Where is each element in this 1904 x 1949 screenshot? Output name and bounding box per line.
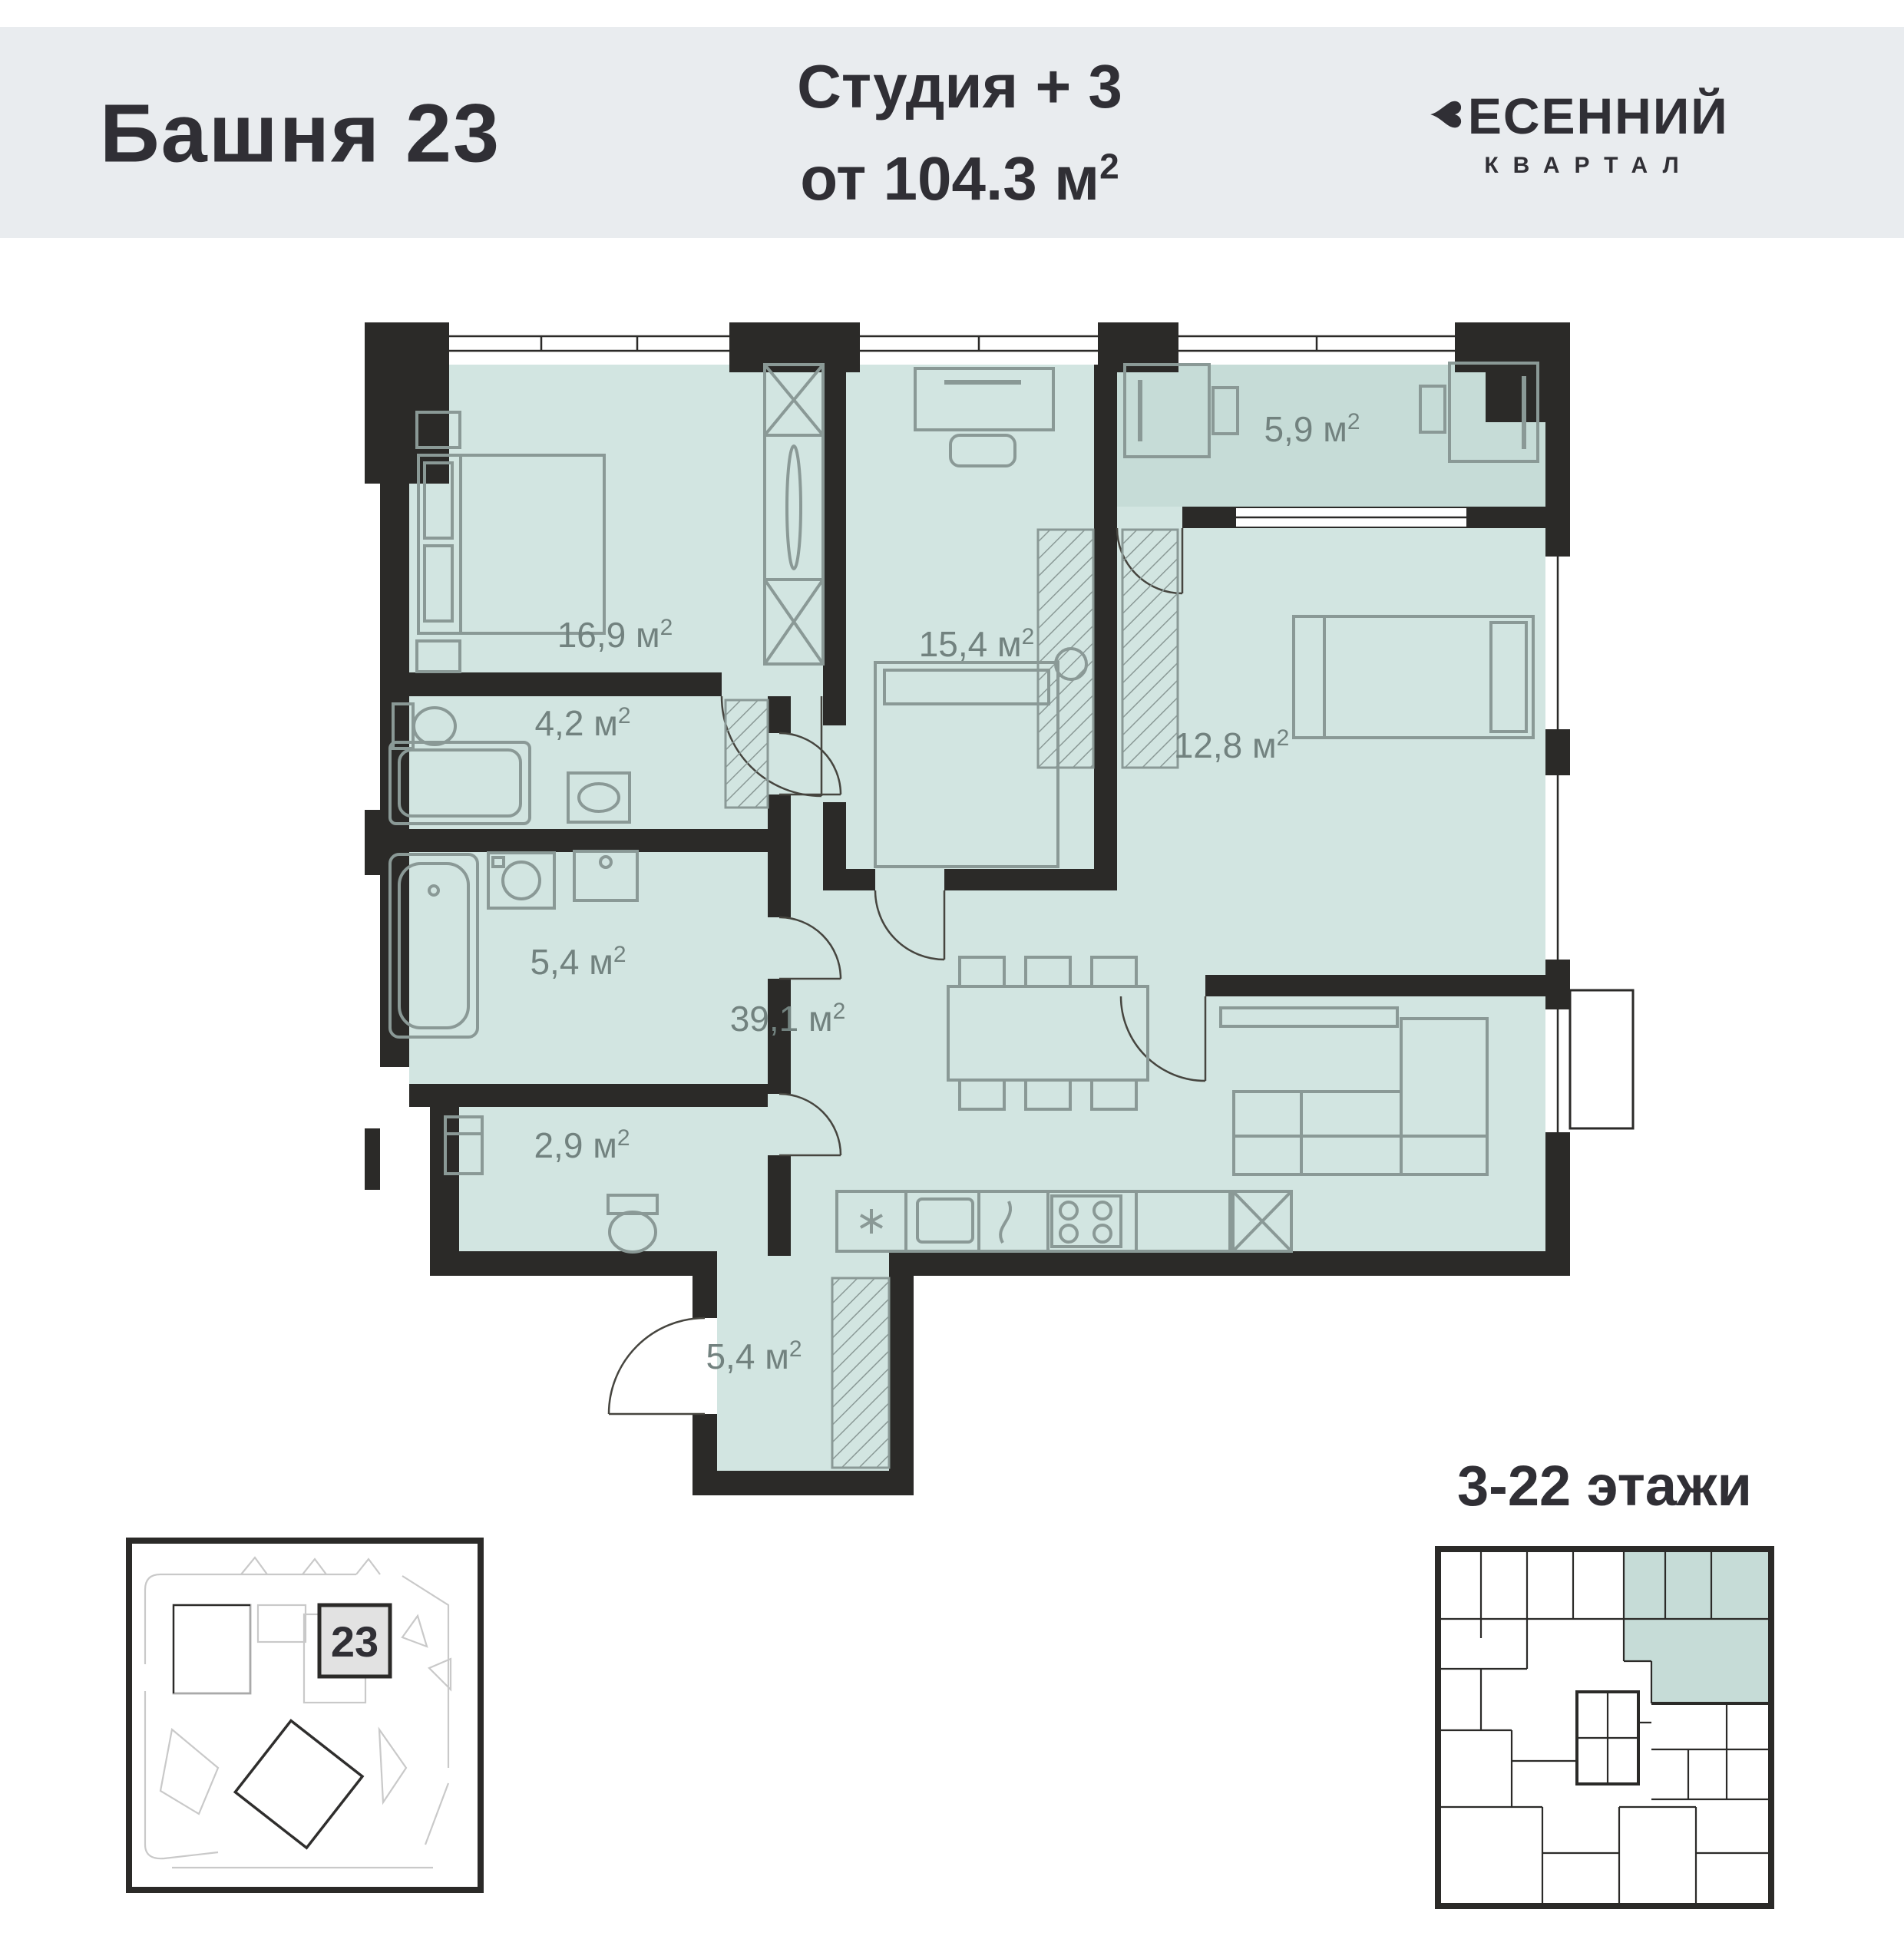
unit-area-text: от 104.3 м (800, 144, 1099, 213)
room-label-cabinet-loggia: 5,9 м2 (1264, 409, 1360, 449)
room-label-wc: 2,9 м2 (534, 1125, 630, 1165)
tower-title: Башня 23 (100, 84, 501, 180)
page-root: Башня 23 Студия + 3 от 104.3 м2 ♥ЕСЕННИЙ… (0, 0, 1904, 1949)
site-badge-label: 23 (331, 1617, 378, 1666)
room-label-bedroom-child: 12,8 м2 (1174, 725, 1290, 765)
brand-name: ♥ЕСЕННИЙ (1351, 87, 1812, 145)
header-band: Башня 23 Студия + 3 от 104.3 м2 ♥ЕСЕННИЙ… (0, 27, 1904, 238)
room-label-bathroom-small: 4,2 м2 (534, 703, 630, 743)
brand-name-rest: ЕСЕННИЙ (1468, 88, 1729, 144)
entrance-door-arc (609, 1318, 705, 1414)
room-label-bathroom-big: 5,4 м2 (530, 942, 626, 982)
wardrobe-128 (1122, 530, 1178, 768)
wardrobe-154 (1038, 530, 1093, 768)
building-floorplate (1435, 1546, 1774, 1909)
corridor-closet (726, 700, 768, 808)
unit-type-line: Студия + 3 (729, 41, 1190, 133)
unit-summary: Студия + 3 от 104.3 м2 (729, 41, 1190, 225)
apartment-floor (409, 365, 1545, 1471)
site-badge: 23 (319, 1605, 390, 1676)
outside-balcony (1570, 990, 1633, 1128)
site-map: 23 (126, 1538, 484, 1893)
unit-area-line: от 104.3 м2 (729, 133, 1190, 225)
room-label-hallway: 5,4 м2 (706, 1336, 802, 1376)
floors-title: 3-22 этажи (1390, 1453, 1820, 1518)
brand-subtitle: КВАРТАЛ (1351, 153, 1812, 179)
apartment-floorplan: 16,9 м24,2 м215,4 м25,9 м212,8 м25,4 м23… (338, 303, 1635, 1539)
room-label-bedroom-middle: 15,4 м2 (919, 624, 1035, 664)
unit-area-sup: 2 (1099, 146, 1119, 186)
hall-wardrobe (832, 1278, 889, 1468)
brand-logo: ♥ЕСЕННИЙ КВАРТАЛ (1351, 87, 1812, 179)
room-label-living-kitchen: 39,1 м2 (730, 999, 846, 1039)
room-label-bedroom-master: 16,9 м2 (557, 615, 673, 655)
